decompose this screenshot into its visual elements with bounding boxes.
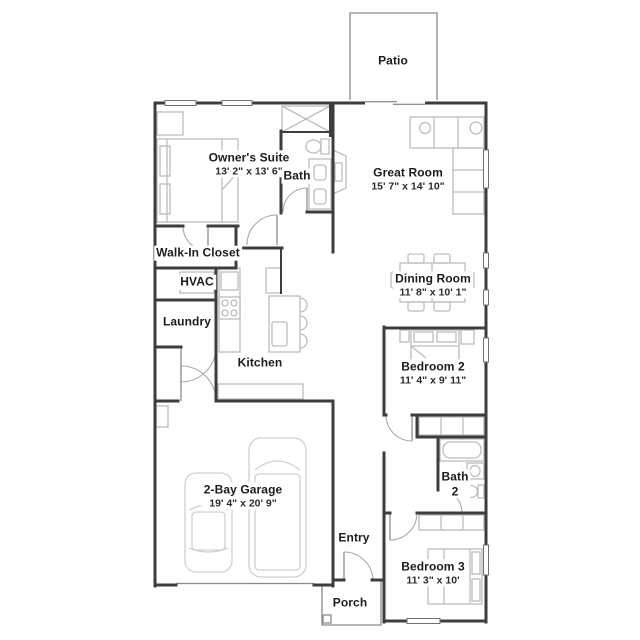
window-icon — [165, 101, 196, 106]
window-icon — [484, 338, 489, 362]
room-label-bath-2: Bath 2 — [439, 469, 470, 498]
shower-icon — [282, 106, 330, 132]
room-label-dining-room: Dining Room 11' 8" x 10' 1" — [393, 271, 473, 298]
bathtub-icon — [440, 439, 484, 461]
room-label-kitchen: Kitchen — [236, 356, 285, 371]
owners-suite-door-icon — [247, 215, 277, 245]
window-icon — [407, 619, 440, 624]
dresser-icon — [157, 112, 183, 135]
window-icon — [484, 290, 489, 305]
owners-bath-door-icon — [283, 188, 307, 212]
kitchen-island-icon — [269, 296, 307, 352]
room-label-walk-in-closet: Walk-In Closet — [154, 246, 242, 261]
room-label-entry: Entry — [336, 531, 371, 546]
front-door-icon — [344, 552, 373, 581]
room-label-hvac: HVAC — [178, 275, 216, 290]
room-label-laundry: Laundry — [161, 315, 213, 330]
room-label-porch: Porch — [331, 596, 370, 611]
window-icon — [484, 253, 489, 268]
room-label-garage: 2-Bay Garage 19' 4" x 20' 9" — [202, 482, 285, 509]
bedroom3-door-icon — [390, 513, 417, 540]
floor-plan: Patio Owner's Suite 13' 2" x 13' 6" Bath… — [0, 0, 640, 640]
floor-plan-drawing — [0, 0, 640, 640]
kitchen-back-counter-icon — [218, 384, 303, 399]
wall-pillar — [329, 103, 334, 137]
garage-entry-door-icon — [181, 366, 216, 401]
bedroom3-closet-icon — [419, 515, 484, 530]
water-heater-icon — [156, 406, 168, 427]
window-icon — [484, 545, 489, 575]
sliding-door-icon — [365, 101, 425, 106]
room-label-bedroom-2: Bedroom 2 11' 4" x 9' 11" — [398, 359, 468, 386]
toilet-icon — [306, 139, 329, 154]
room-label-great-room: Great Room 15' 7" x 14' 10" — [369, 165, 446, 192]
vanity-icon — [309, 159, 331, 209]
bedroom2-closet-icon — [419, 417, 484, 435]
laundry-door-icon — [181, 347, 216, 382]
window-icon — [484, 150, 489, 188]
window-icon — [222, 101, 252, 106]
fridge-icon — [266, 268, 281, 293]
kitchen-counter-icon — [219, 268, 240, 352]
bedroom2-door-icon — [386, 415, 412, 441]
room-label-bath: Bath — [281, 169, 312, 184]
room-label-owners-suite: Owner's Suite 13' 2" x 13' 6" — [207, 150, 292, 177]
stove-icon — [219, 297, 240, 319]
porch-post-icon — [323, 615, 331, 623]
room-label-bedroom-3: Bedroom 3 11' 3" x 10' — [399, 559, 467, 586]
tv-unit-icon — [333, 150, 346, 194]
room-label-patio: Patio — [376, 54, 410, 69]
